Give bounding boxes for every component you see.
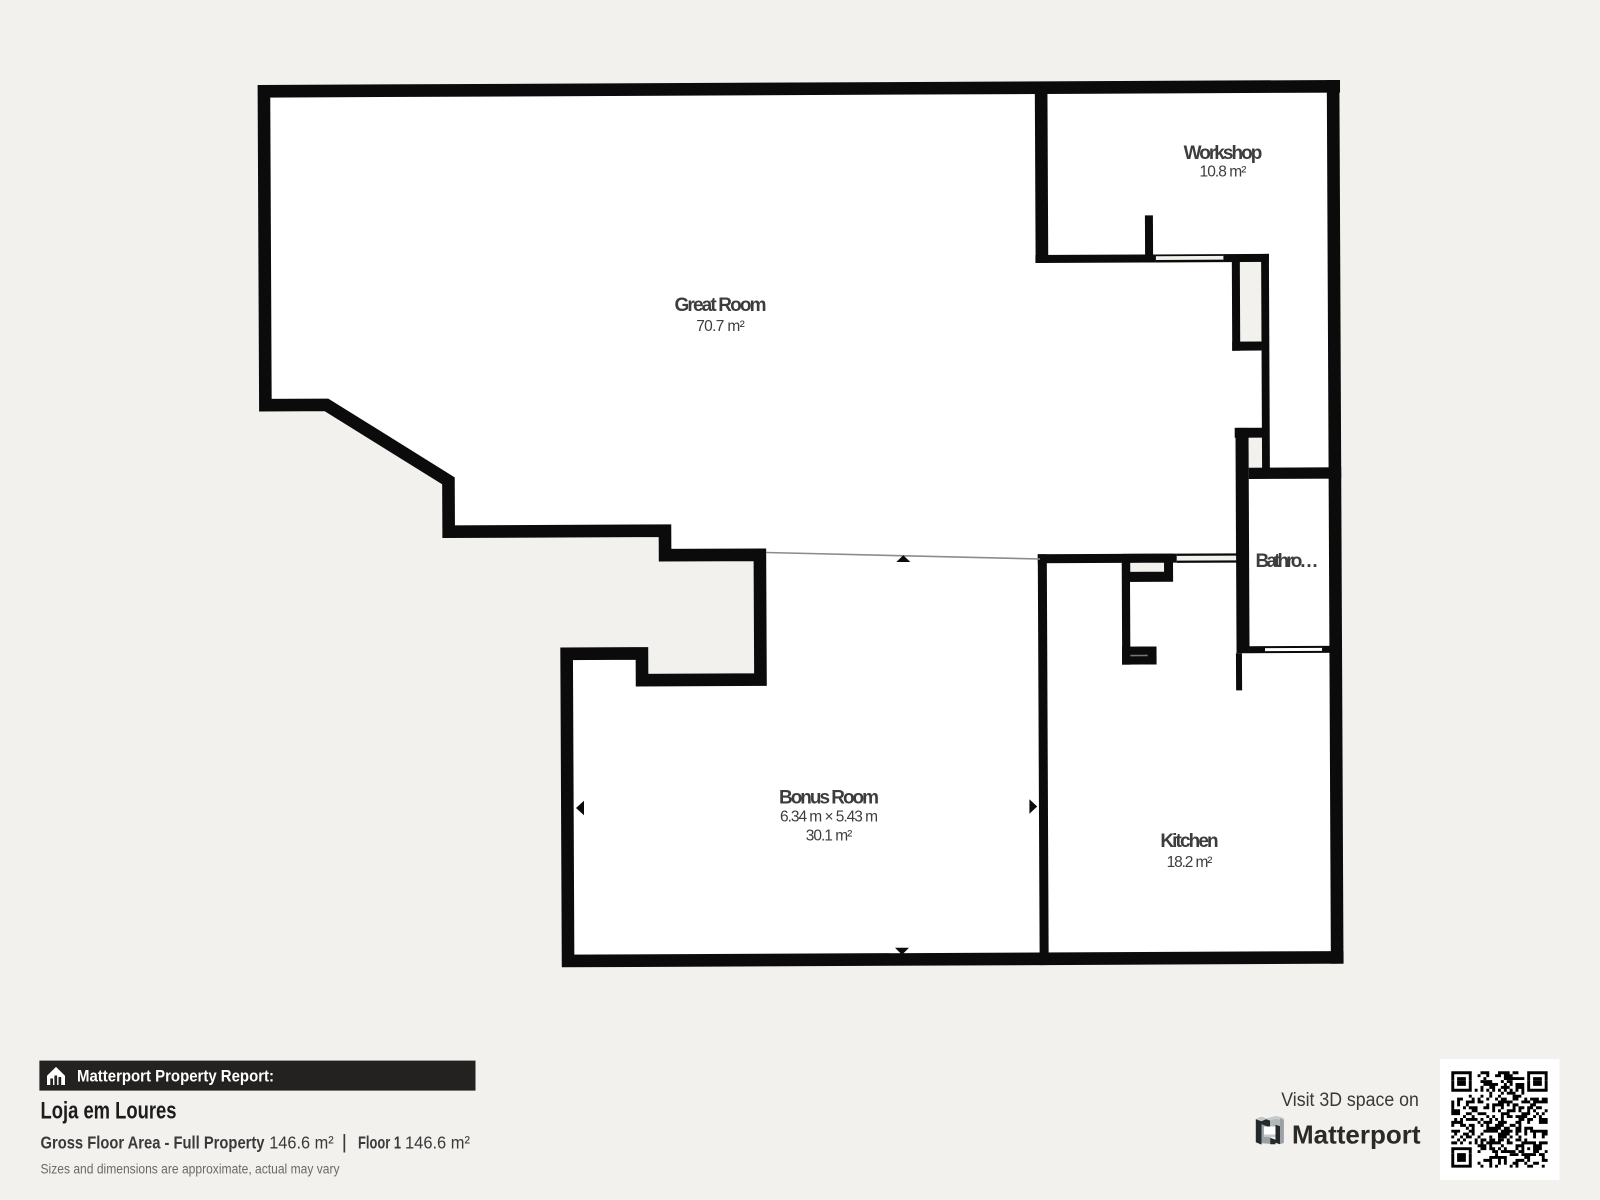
svg-text:6.34 m × 5.43 m: 6.34 m × 5.43 m bbox=[780, 809, 878, 826]
svg-text:146.6 m²: 146.6 m² bbox=[405, 1133, 470, 1153]
svg-text:Loja em Loures: Loja em Loures bbox=[41, 1098, 177, 1125]
svg-text:30.1 m²: 30.1 m² bbox=[806, 827, 853, 844]
svg-text:Matterport: Matterport bbox=[1292, 1120, 1421, 1150]
svg-text:70.7 m²: 70.7 m² bbox=[696, 318, 745, 335]
svg-text:Workshop: Workshop bbox=[1184, 143, 1263, 164]
svg-text:Matterport Property Report:: Matterport Property Report: bbox=[77, 1068, 274, 1086]
svg-text:Floor 1: Floor 1 bbox=[358, 1133, 401, 1153]
svg-text:Kitchen: Kitchen bbox=[1160, 831, 1218, 852]
svg-text:146.6 m²: 146.6 m² bbox=[269, 1133, 334, 1153]
svg-text:Visit 3D space on: Visit 3D space on bbox=[1281, 1090, 1419, 1111]
svg-text:Great Room: Great Room bbox=[675, 295, 767, 316]
svg-text:18.2 m²: 18.2 m² bbox=[1167, 854, 1213, 871]
svg-text:10.8 m²: 10.8 m² bbox=[1200, 164, 1247, 181]
svg-text:Sizes and dimensions are appro: Sizes and dimensions are approximate, ac… bbox=[41, 1162, 340, 1177]
svg-text:Bathro…: Bathro… bbox=[1256, 551, 1319, 572]
svg-text:Bonus Room: Bonus Room bbox=[779, 787, 879, 808]
svg-text:Gross Floor Area - Full Proper: Gross Floor Area - Full Property bbox=[41, 1133, 265, 1153]
